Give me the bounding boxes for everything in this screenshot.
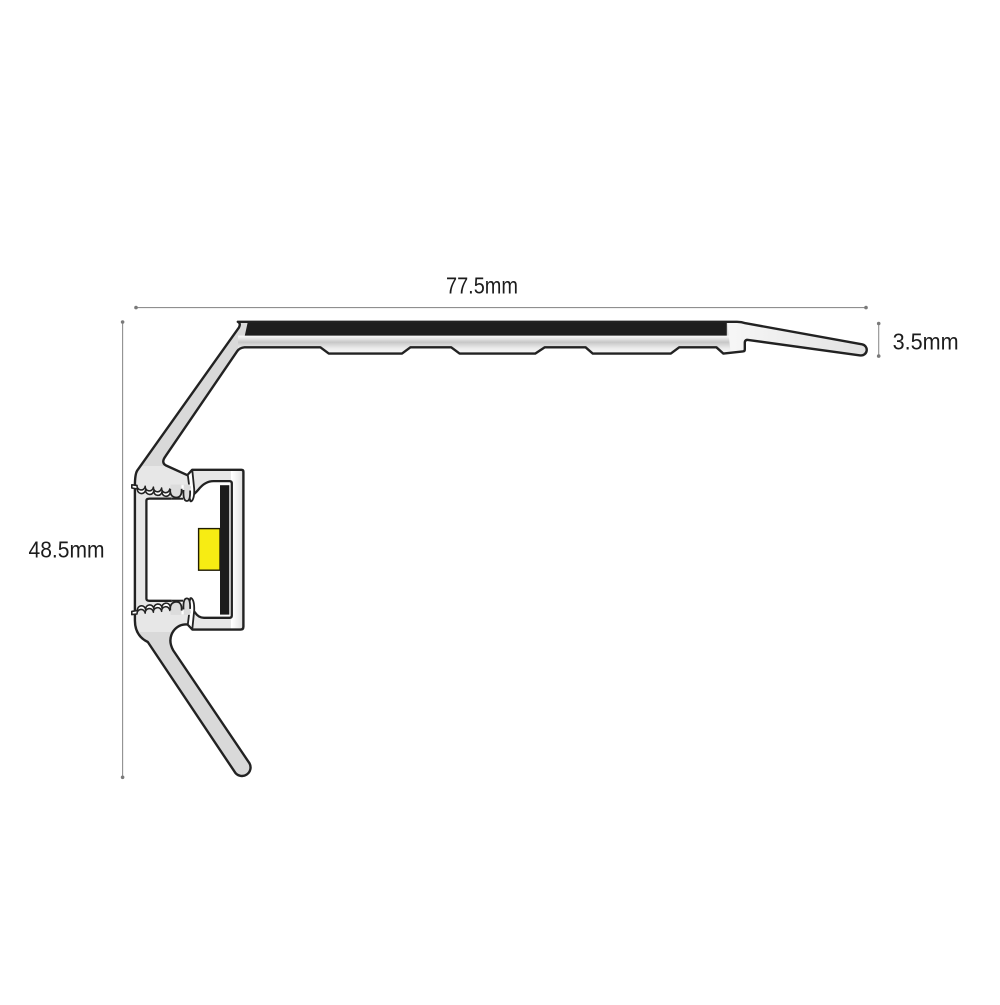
svg-text:77.5mm: 77.5mm bbox=[446, 273, 518, 299]
svg-text:3.5mm: 3.5mm bbox=[893, 329, 959, 355]
svg-text:48.5mm: 48.5mm bbox=[29, 537, 105, 563]
